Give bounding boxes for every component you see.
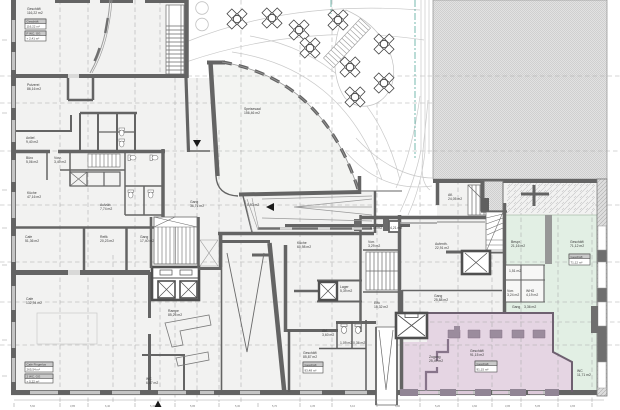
svg-text:0,93 m2: 0,93 m2 xyxy=(247,203,259,207)
svg-text:5,60: 5,60 xyxy=(30,404,36,408)
svg-text:3,36 m2: 3,36 m2 xyxy=(524,305,536,309)
svg-text:21,16 m2: 21,16 m2 xyxy=(511,244,525,248)
svg-text:3,95: 3,95 xyxy=(505,404,511,408)
svg-text:25,49 m2: 25,49 m2 xyxy=(429,359,443,363)
svg-text:86,16 m2: 86,16 m2 xyxy=(27,87,41,91)
svg-text:4,35: 4,35 xyxy=(310,404,316,408)
svg-text:5,39 m2: 5,39 m2 xyxy=(340,289,352,293)
svg-text:132,94 m2: 132,94 m2 xyxy=(26,301,42,305)
svg-text:+ 5,22 m²: + 5,22 m² xyxy=(27,380,40,384)
svg-text:71,12 m2: 71,12 m2 xyxy=(570,244,584,248)
svg-text:Geschäft: Geschäft xyxy=(571,255,583,259)
svg-text:3,24 m2: 3,24 m2 xyxy=(507,293,519,297)
svg-text:1,09 m2: 1,09 m2 xyxy=(340,341,352,345)
svg-text:0,36 m2: 0,36 m2 xyxy=(353,341,365,345)
svg-text:20,23 m2: 20,23 m2 xyxy=(100,239,114,243)
svg-text:5,05: 5,05 xyxy=(535,404,541,408)
svg-text:11,71 m2: 11,71 m2 xyxy=(577,373,591,377)
svg-text:85,25 m2: 85,25 m2 xyxy=(168,313,182,317)
svg-text:5,20: 5,20 xyxy=(435,404,441,408)
svg-text:91,15 m2: 91,15 m2 xyxy=(470,353,484,357)
svg-text:F WC, GG: F WC, GG xyxy=(27,32,42,36)
svg-text:2 WC, GG: 2 WC, GG xyxy=(27,375,42,379)
svg-text:1,15 m2: 1,15 m2 xyxy=(370,226,382,230)
svg-text:9,40 m2: 9,40 m2 xyxy=(26,140,38,144)
svg-text:+ 2,41 m²: + 2,41 m² xyxy=(27,37,40,41)
svg-text:5,30: 5,30 xyxy=(235,404,241,408)
svg-text:Gang: Gang xyxy=(512,305,520,309)
svg-text:22,91 m2: 22,91 m2 xyxy=(435,246,449,250)
svg-text:93,48 m²: 93,48 m² xyxy=(305,369,317,373)
svg-text:4,60: 4,60 xyxy=(472,404,478,408)
svg-text:71,12 m²: 71,12 m² xyxy=(571,261,583,265)
svg-text:Cafe Fingerlos: Cafe Fingerlos xyxy=(27,363,47,367)
svg-text:1,51 m2: 1,51 m2 xyxy=(509,269,521,273)
svg-text:3,85: 3,85 xyxy=(70,404,76,408)
svg-text:6,40: 6,40 xyxy=(105,404,111,408)
svg-text:6,10: 6,10 xyxy=(350,404,356,408)
svg-text:15,32 m2: 15,32 m2 xyxy=(374,305,388,309)
svg-text:4,19 m2: 4,19 m2 xyxy=(526,293,538,297)
svg-text:47,16 m2: 47,16 m2 xyxy=(27,195,41,199)
svg-text:265,54 m²: 265,54 m² xyxy=(27,368,41,372)
svg-text:5,70: 5,70 xyxy=(272,404,278,408)
svg-text:25,88 m2: 25,88 m2 xyxy=(434,298,448,302)
svg-text:5,80: 5,80 xyxy=(395,404,401,408)
svg-text:60,98 m2: 60,98 m2 xyxy=(297,245,311,249)
svg-text:4,21 m2: 4,21 m2 xyxy=(390,226,402,230)
svg-text:24,05 m2: 24,05 m2 xyxy=(448,197,462,201)
svg-text:3,60 m2: 3,60 m2 xyxy=(322,333,334,337)
svg-text:5,06 m2: 5,06 m2 xyxy=(26,160,38,164)
svg-text:51,36 m2: 51,36 m2 xyxy=(25,239,39,243)
svg-text:116,22 m²: 116,22 m² xyxy=(27,25,40,29)
svg-text:5,45: 5,45 xyxy=(150,404,156,408)
svg-text:116,22 m2: 116,22 m2 xyxy=(27,11,43,15)
svg-text:6,47 m2: 6,47 m2 xyxy=(146,381,158,385)
svg-text:85,87 m2: 85,87 m2 xyxy=(303,355,317,359)
svg-text:4,65: 4,65 xyxy=(570,404,576,408)
svg-text:7,74 m2: 7,74 m2 xyxy=(100,207,112,211)
svg-text:3,29 m2: 3,29 m2 xyxy=(368,244,380,248)
svg-text:91,15 m²: 91,15 m² xyxy=(477,368,489,372)
svg-text:36,71 m2: 36,71 m2 xyxy=(190,204,204,208)
svg-text:Geschäft: Geschäft xyxy=(477,362,489,366)
svg-text:Geschäft: Geschäft xyxy=(305,363,317,367)
svg-text:Geschäft: Geschäft xyxy=(27,20,39,24)
svg-text:156,46 m2: 156,46 m2 xyxy=(244,111,260,115)
svg-text:17,40 m2: 17,40 m2 xyxy=(140,239,154,243)
svg-text:5,95: 5,95 xyxy=(190,404,196,408)
svg-text:3,40 m2: 3,40 m2 xyxy=(54,160,66,164)
